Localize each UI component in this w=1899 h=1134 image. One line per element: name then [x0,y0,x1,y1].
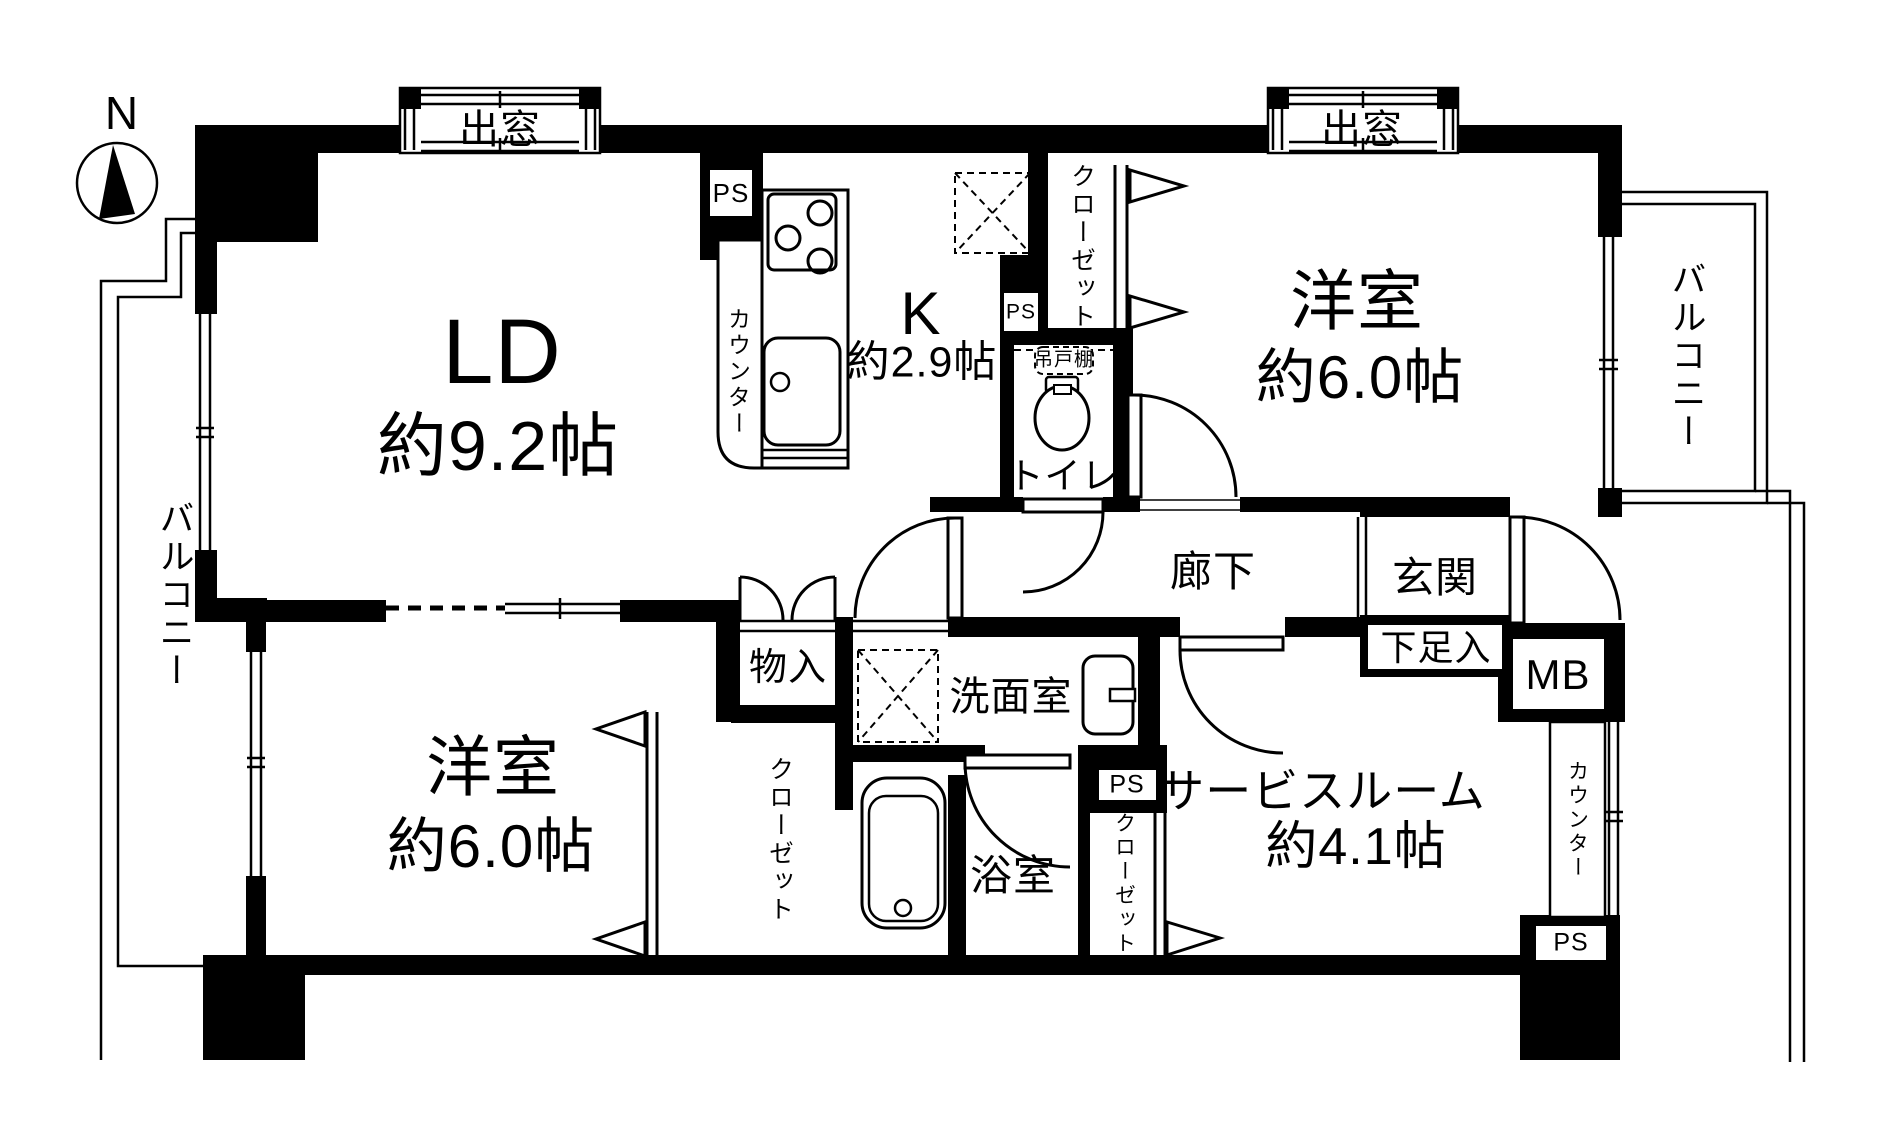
floor-plan: N 出窓 出窓 LD 約9.2帖 K 約2.9帖 洋室 約6.0帖 洋室 約6.… [0,0,1899,1134]
balcony-label-right: バルコニー [1669,261,1704,451]
toilet-icon [1035,386,1089,450]
entrance-label: 玄関 [1392,557,1478,599]
shoe-cabinet-label: 下足入 [1380,630,1491,666]
western-room-sw-label: 洋室 [426,734,560,800]
bay-window-label-left: 出窓 [459,110,541,150]
balcony-label-left: バルコニー [157,500,192,690]
pipe-space-label-kitchen: PS [713,180,750,206]
kitchen-label: K [900,284,941,344]
bay-window-label-right: 出窓 [1321,110,1403,150]
pipe-space-label-washroom: PS [1109,773,1144,798]
closet-label-sw: クローゼット [767,756,792,924]
floor-plan-drawing [0,0,1899,1134]
pipe-space-label-mid: PS [1006,302,1036,323]
service-room-label: サービスルーム [1158,768,1486,814]
hallway-label: 廊下 [1170,551,1256,593]
storage-label: 物入 [749,649,827,687]
sink-icon [764,338,840,445]
western-room-sw-size: 約6.0帖 [387,817,595,877]
western-room-ne-size: 約6.0帖 [1256,348,1464,408]
counter-label-kitchen: カウンター [726,307,749,437]
ld-room-size: 約9.2帖 [377,411,619,481]
ld-room-label: LD [442,306,562,398]
service-room-size: 約4.1帖 [1265,821,1446,873]
closet-label-ne: クローゼット [1069,163,1094,331]
toilet-label: トイレ [1007,458,1118,494]
pipe-space-label-se: PS [1553,931,1588,956]
bathroom-label: 浴室 [970,855,1056,897]
compass-north-label: N [105,90,139,136]
bath-fixtures [862,778,945,928]
washroom-label: 洗面室 [950,677,1073,717]
hanging-cupboard-label: 吊戸棚 [1034,351,1094,370]
counter-label-service: カウンター [1567,760,1588,880]
western-room-ne-label: 洋室 [1290,268,1424,334]
kitchen-fixtures [718,173,1030,468]
closet-label-service: クローゼット [1114,812,1135,956]
compass-icon [77,143,157,223]
kitchen-size: 約2.9帖 [847,342,998,385]
meter-box-label: MB [1526,654,1591,696]
